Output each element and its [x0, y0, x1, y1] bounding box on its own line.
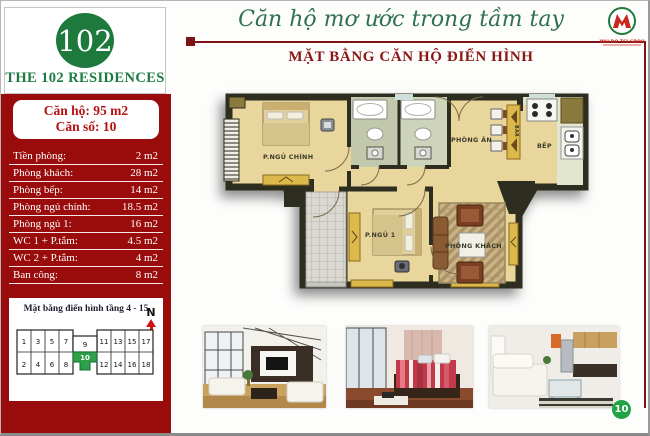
- floor-key-plan-box: Mặt bằng điển hình tầng 4 - 15 N: [9, 298, 163, 401]
- kitchen-fridge: [561, 98, 583, 123]
- table-row: Phòng ngủ chính:18.5 m2: [9, 199, 163, 216]
- unit-number-label: 15: [128, 338, 137, 346]
- unit-number-label: 2: [22, 361, 26, 369]
- table-row: Ban công:8 m2: [9, 267, 163, 284]
- unit-number-label: 7: [64, 338, 68, 346]
- unit-number-label: 14: [114, 361, 123, 369]
- right-rule: [644, 41, 646, 408]
- project-102-logo: 102: [56, 13, 114, 68]
- label-living: PHÒNG KHÁCH: [445, 241, 502, 250]
- page-title: MẶT BẰNG CĂN HỘ ĐIỂN HÌNH: [191, 49, 631, 66]
- label-dining: PHÒNG ĂN: [451, 135, 492, 144]
- table-row: Tiền phòng:2 m2: [9, 148, 163, 165]
- unit-number-label: 16: [128, 361, 137, 369]
- building-key-plan: 1 3 5 7 9 11 13 15 17 2 4 6 8 10 12 14 1: [15, 324, 155, 382]
- photo-living-kitchen: [489, 326, 619, 408]
- toilet-1: [367, 128, 383, 140]
- table-row: WC 1 + P.tắm:4.5 m2: [9, 233, 163, 250]
- dining-chair: [491, 141, 502, 151]
- room-value: 4.5 m2: [127, 235, 158, 247]
- project-name: THE 102 RESIDENCES: [5, 70, 165, 87]
- room-area-table: Tiền phòng:2 m2 Phòng khách:28 m2 Phòng …: [9, 148, 163, 284]
- slogan-script-text: Căn hộ mơ ước trong tầm tay: [181, 7, 621, 32]
- brochure-page: 102 THE 102 RESIDENCES Căn hộ: 95 m2 Căn…: [0, 0, 650, 436]
- kitchen-stove: [527, 99, 557, 121]
- room-value: 18.5 m2: [122, 201, 158, 213]
- project-logo-box: 102 THE 102 RESIDENCES: [4, 7, 166, 94]
- sidebar: 102 THE 102 RESIDENCES Căn hộ: 95 m2 Căn…: [1, 1, 171, 436]
- room-label: Tiền phòng:: [13, 150, 66, 162]
- unit-info-box: Căn hộ: 95 m2 Căn số: 10: [13, 100, 159, 139]
- header-rule: [189, 41, 645, 43]
- unit-number-label: 1: [22, 338, 26, 346]
- page-number: 10: [615, 404, 629, 415]
- table-row: Phòng bếp:14 m2: [9, 182, 163, 199]
- room-label: Ban công:: [13, 269, 58, 281]
- room-value: 28 m2: [130, 167, 158, 179]
- unit-number-label: 6: [50, 361, 55, 369]
- apartment-floor-plan: P.NGỦ CHÍNH PHÒNG ĂN BAR BẾP P.NGỦ 1 PHÒ…: [199, 85, 617, 313]
- room-label: Phòng ngủ chính:: [13, 201, 91, 213]
- bedroom1-window-sill: [351, 280, 393, 287]
- company-logo: KINH DO TCI GROUP: [599, 5, 645, 49]
- room-value: 2 m2: [136, 150, 158, 162]
- logo-number: 102: [57, 24, 112, 58]
- unit-number-label: 11: [100, 338, 109, 346]
- unit-number-label-highlighted: 10: [80, 354, 90, 362]
- photo-living-room-tv-wall: [203, 326, 326, 408]
- unit-number-label: 13: [114, 338, 123, 346]
- room-value: 14 m2: [130, 184, 158, 196]
- toilet-2: [415, 128, 431, 140]
- room-label: WC 1 + P.tắm:: [13, 235, 78, 247]
- unit-number-label: 3: [36, 338, 40, 346]
- page-number-badge: 10: [612, 400, 631, 419]
- room-label: Phòng khách:: [13, 167, 73, 179]
- unit-number: Căn số: 10: [13, 119, 159, 135]
- table-row: WC 2 + P.tắm:4 m2: [9, 250, 163, 267]
- floor-key-plan-title: Mặt bằng điển hình tầng 4 - 15: [9, 298, 163, 314]
- room-value: 16 m2: [130, 218, 158, 230]
- label-kitchen: BẾP: [537, 140, 552, 150]
- unit-number-label: 5: [50, 338, 54, 346]
- bedroom1-wardrobe: [349, 213, 360, 261]
- logo-text: KINH DO TCI GROUP: [599, 39, 645, 45]
- unit-area: Căn hộ: 95 m2: [13, 103, 159, 119]
- room-label: Phòng ngủ 1:: [13, 218, 72, 230]
- logo-ring: [609, 8, 635, 34]
- bathtub-2: [401, 100, 435, 119]
- room-label: Phòng bếp:: [13, 184, 63, 196]
- photo-bedroom: [346, 326, 473, 408]
- label-bedroom1: P.NGỦ 1: [365, 229, 396, 239]
- room-label: WC 2 + P.tắm:: [13, 252, 78, 264]
- table-row: Phòng ngủ 1:16 m2: [9, 216, 163, 233]
- unit-number-label: 17: [142, 338, 151, 346]
- label-master-bedroom: P.NGỦ CHÍNH: [263, 151, 313, 161]
- dining-chair: [491, 125, 502, 135]
- sidebar-red-panel: Căn hộ: 95 m2 Căn số: 10 Tiền phòng:2 m2…: [1, 94, 171, 436]
- label-bar: BAR: [513, 125, 519, 137]
- unit-number-label: 4: [36, 361, 41, 369]
- dining-chair: [491, 109, 502, 119]
- room-value: 4 m2: [136, 252, 158, 264]
- table-row: Phòng khách:28 m2: [9, 165, 163, 182]
- room-value: 8 m2: [136, 269, 158, 281]
- bathtub-1: [353, 100, 387, 119]
- master-window-strip: [224, 119, 239, 181]
- unit-number-label: 18: [142, 361, 151, 369]
- north-label: N: [144, 308, 158, 318]
- unit-number-label: 12: [100, 361, 109, 369]
- unit-number-label: 9: [83, 341, 87, 349]
- balcony-floor: [306, 192, 346, 282]
- unit-number-label: 8: [64, 361, 68, 369]
